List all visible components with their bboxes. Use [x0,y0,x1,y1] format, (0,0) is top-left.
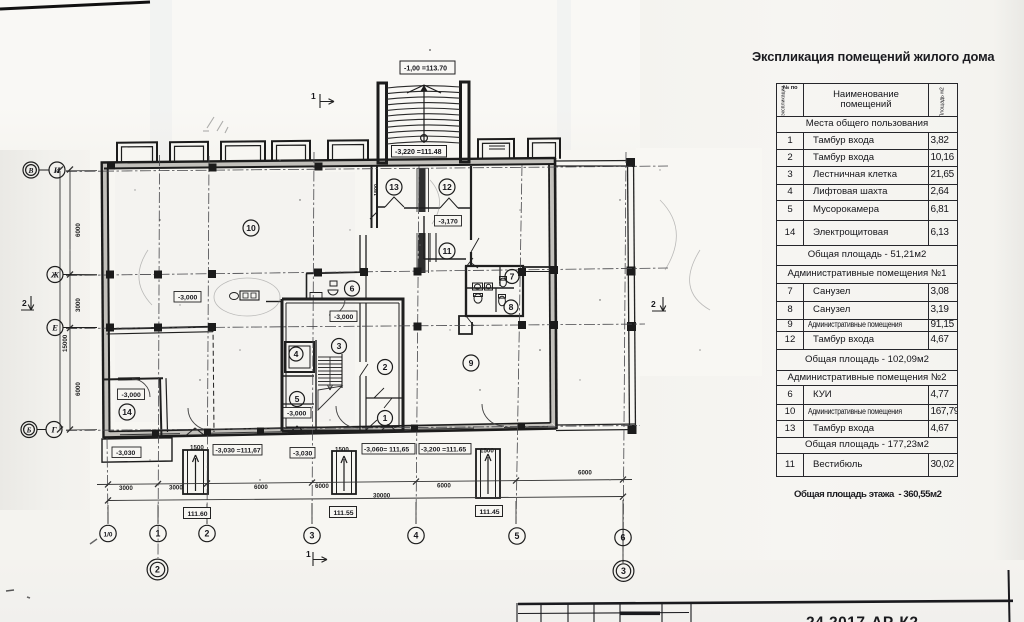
svg-text:Г: Г [50,425,57,435]
svg-text:9: 9 [469,358,474,368]
svg-text:Б: Б [26,426,32,435]
svg-text:-3,170: -3,170 [439,219,458,226]
svg-text:12: 12 [442,182,452,192]
svg-text:1500: 1500 [335,447,349,454]
svg-text:24.2017-АР-К2: 24.2017-АР-К2 [806,615,918,622]
svg-text:8: 8 [509,302,514,312]
svg-text:Ж: Ж [50,270,60,280]
svg-text:111.55: 111.55 [334,510,354,517]
svg-text:6000: 6000 [437,483,451,490]
svg-text:3000: 3000 [75,298,82,312]
svg-text:И: И [53,165,62,175]
svg-text:3000: 3000 [119,485,133,492]
svg-text:3000: 3000 [169,485,183,492]
svg-text:-3,000: -3,000 [334,314,353,321]
svg-text:-3,030 =111,67: -3,030 =111,67 [216,448,261,455]
svg-text:2: 2 [383,362,388,372]
svg-text:4: 4 [294,349,299,359]
svg-text:3: 3 [310,531,315,541]
svg-text:6: 6 [350,284,355,294]
svg-text:6: 6 [621,533,626,543]
svg-text:-3,000: -3,000 [178,295,197,302]
svg-text:-3,030: -3,030 [293,451,312,458]
svg-text:1/0: 1/0 [104,532,113,539]
svg-text:1: 1 [156,529,161,539]
svg-text:6000: 6000 [315,483,329,490]
svg-text:1500: 1500 [480,448,494,455]
svg-text:В: В [28,166,34,175]
svg-text:-3,030: -3,030 [116,450,135,457]
svg-text:2: 2 [205,529,210,539]
svg-text:-3,060= 111,65: -3,060= 111,65 [364,447,409,454]
svg-text:1500: 1500 [190,445,204,452]
svg-text:5: 5 [295,394,300,404]
svg-text:1: 1 [311,91,316,101]
svg-text:6000: 6000 [75,223,82,237]
svg-text:-3,000: -3,000 [122,392,141,399]
svg-text:111.45: 111.45 [480,509,500,516]
svg-text:-3,220 =111.48: -3,220 =111.48 [395,149,442,156]
svg-text:-3,200 =111.65: -3,200 =111.65 [421,447,466,454]
svg-text:6000: 6000 [254,484,268,491]
svg-text:6000: 6000 [75,382,82,396]
svg-text:-1,00 =113.70: -1,00 =113.70 [404,66,447,73]
svg-text:-3,000: -3,000 [287,411,306,418]
svg-text:15000: 15000 [62,334,69,352]
svg-text:2: 2 [651,299,656,309]
svg-text:2: 2 [22,298,27,308]
svg-text:14: 14 [122,407,132,417]
svg-text:7: 7 [510,272,515,282]
svg-text:13: 13 [389,182,399,192]
svg-text:10: 10 [246,223,256,233]
svg-text:4: 4 [414,531,419,541]
svg-text:1800: 1800 [374,184,380,196]
svg-text:Е: Е [51,323,58,333]
svg-text:1: 1 [383,413,388,423]
svg-text:5: 5 [515,531,520,541]
svg-text:11: 11 [442,246,451,256]
svg-text:6000: 6000 [578,470,592,477]
svg-text:111.60: 111.60 [188,511,208,518]
svg-text:3: 3 [337,341,342,351]
svg-text:30000: 30000 [373,493,391,500]
